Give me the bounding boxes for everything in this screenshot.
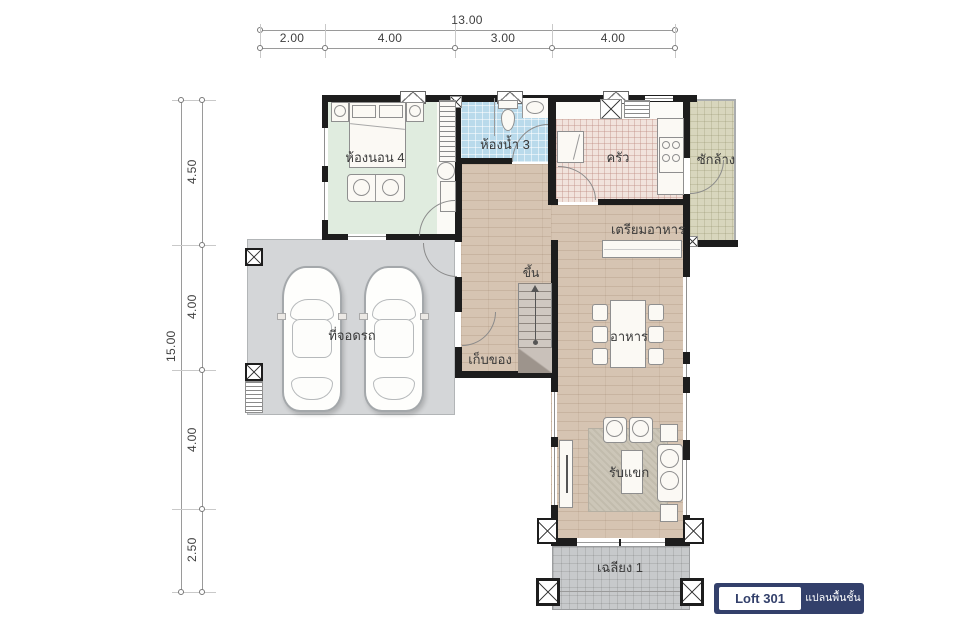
laundry-label: ซักล้าง — [671, 149, 761, 170]
stair-start-dot — [533, 340, 538, 345]
dim-extension — [325, 24, 326, 58]
storage-label: เก็บของ — [440, 349, 540, 370]
burner — [662, 141, 670, 149]
wall-wing-left-1 — [551, 378, 558, 392]
wall-wing-right-4 — [683, 440, 690, 460]
dim-extension — [260, 24, 261, 58]
dim-top-total: 13.00 — [437, 13, 497, 27]
column-garage-top — [245, 248, 263, 266]
dim-extension — [552, 24, 553, 58]
dining-chair — [648, 304, 664, 321]
car-mirror — [338, 313, 347, 320]
dish-rack — [624, 100, 650, 118]
dim-line — [181, 100, 182, 592]
porch-label: เฉลียง 1 — [570, 557, 670, 578]
bathroom3-label: ห้องน้ำ 3 — [460, 134, 550, 155]
car-mirror — [277, 313, 286, 320]
dim-tick — [549, 45, 555, 51]
car-rear-window — [291, 377, 334, 400]
dim-tick — [452, 45, 458, 51]
wall-wing-right-3 — [683, 377, 690, 393]
bench-divider — [375, 175, 376, 201]
side-table — [660, 424, 678, 442]
stair-direction-line — [535, 291, 536, 341]
bath-partition — [494, 98, 495, 136]
window-wing-left-2 — [552, 447, 557, 505]
plan-caption: แปลนพื้นชั้น 1 — [803, 587, 863, 610]
dim-tick — [199, 506, 205, 512]
dim-top-seg-3: 3.00 — [483, 31, 523, 45]
dining-label: อาหาร — [579, 326, 679, 347]
dim-tick — [178, 589, 184, 595]
window-wing-right-2 — [684, 364, 689, 377]
window-bedroom-bottom — [348, 234, 386, 240]
wall-wing-left-2 — [551, 437, 558, 447]
dim-line — [202, 100, 203, 592]
dim-tick — [672, 45, 678, 51]
round-chair — [437, 162, 455, 180]
wall-hall-left-1 — [455, 164, 462, 242]
pillow — [379, 105, 403, 118]
dim-tick — [257, 45, 263, 51]
dim-tick — [178, 97, 184, 103]
cushion — [606, 420, 623, 437]
window-wing-right-3 — [684, 393, 689, 440]
car-mirror — [359, 313, 368, 320]
dining-chair — [592, 348, 608, 365]
sink-icon — [526, 101, 544, 114]
dim-tick — [199, 97, 205, 103]
wall-wing-left-3 — [551, 505, 558, 518]
car-windshield — [372, 299, 417, 321]
column-garage-bottom-pier — [245, 381, 263, 413]
column-wing-br — [683, 518, 704, 544]
wall-wing-right-1 — [683, 205, 690, 277]
living-label: รับแขก — [579, 462, 679, 483]
plan-badge: Loft 301 แปลนพื้นชั้น 1 — [714, 583, 864, 614]
wall-hall-left-2 — [455, 277, 462, 312]
kitchen-sink — [600, 99, 622, 119]
dim-left-seg-1: 4.50 — [185, 147, 199, 197]
wall-kitchen-bottom-right — [598, 199, 690, 205]
car-rear-window — [373, 377, 416, 400]
dim-left-seg-3: 4.00 — [185, 415, 199, 465]
dim-tick — [199, 589, 205, 595]
lamp-icon — [409, 105, 421, 117]
bedroom4-label: ห้องนอน 4 — [320, 147, 430, 168]
dim-left-total: 15.00 — [164, 316, 178, 376]
wall-kitchen-right-lower — [683, 194, 690, 205]
floor-plan-canvas: 13.00 2.00 4.00 3.00 4.00 15.00 4.50 4.0… — [0, 0, 980, 635]
dim-extension — [172, 509, 216, 510]
wall-hall-wing-divider — [551, 240, 558, 378]
window-bedroom-left-2 — [322, 182, 328, 220]
window-wing-left-1 — [552, 392, 557, 437]
cushion — [353, 179, 370, 196]
window-wing-right-4 — [684, 460, 689, 515]
porch-step-line — [560, 591, 681, 592]
column-porch-right — [680, 578, 704, 606]
porch-sliding-door — [577, 542, 665, 543]
wall-kitchen-bottom-left — [548, 199, 558, 205]
burner — [672, 141, 680, 149]
wardrobe — [439, 100, 456, 162]
laundry-right-edge — [734, 100, 736, 241]
wall-wing-right-2 — [683, 352, 690, 364]
cushion — [632, 420, 649, 437]
dim-tick — [322, 45, 328, 51]
laundry-top-edge — [697, 99, 736, 101]
dim-top-seg-2: 4.00 — [370, 31, 410, 45]
stairs-up-label: ขึ้น — [501, 264, 561, 283]
dim-extension — [675, 24, 676, 58]
dim-extension — [172, 370, 216, 371]
stair-up-arrow-icon — [531, 285, 539, 292]
column-garage-bottom — [245, 363, 263, 381]
kitchen-label: ครัว — [573, 147, 663, 168]
wall-bath-bottom-left — [455, 158, 512, 164]
dining-chair — [648, 348, 664, 365]
car-mirror — [420, 313, 429, 320]
prep-counter-line — [604, 249, 680, 250]
dim-left-seg-4: 2.50 — [185, 525, 199, 575]
burner — [662, 154, 670, 162]
column-porch-left — [536, 578, 560, 606]
dim-top-seg-4: 4.00 — [593, 31, 633, 45]
car-windshield — [290, 299, 335, 321]
tv-icon — [566, 455, 568, 493]
plan-model-badge: Loft 301 — [719, 587, 801, 610]
side-table — [660, 504, 678, 522]
lamp-icon — [334, 105, 346, 117]
cushion — [382, 179, 399, 196]
dim-left-seg-2: 4.00 — [185, 282, 199, 332]
pillow — [352, 105, 376, 118]
toilet-tank — [498, 100, 518, 109]
dining-chair — [592, 304, 608, 321]
porch-floor — [552, 546, 690, 610]
dim-top-seg-1: 2.00 — [272, 31, 312, 45]
dim-extension — [455, 24, 456, 58]
dim-extension — [172, 245, 216, 246]
dim-tick — [199, 242, 205, 248]
dim-tick — [199, 367, 205, 373]
porch-door-tick — [619, 539, 621, 546]
parking-label: ที่จอดรถ — [302, 325, 402, 346]
food-prep-label: เตรียมอาหาร — [598, 219, 698, 240]
column-wing-bl — [537, 518, 558, 544]
window-wing-right-1 — [684, 277, 689, 352]
